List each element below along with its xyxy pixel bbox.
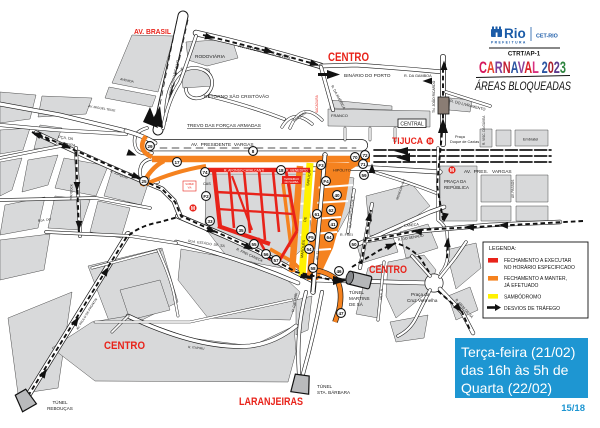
svg-text:Terça-feira (21/02): Terça-feira (21/02) bbox=[461, 344, 575, 360]
svg-text:Quarta (22/02): Quarta (22/02) bbox=[461, 380, 552, 396]
svg-text:M: M bbox=[428, 139, 432, 145]
svg-text:DO SAMBA: DO SAMBA bbox=[285, 180, 299, 184]
svg-text:18: 18 bbox=[278, 168, 284, 173]
svg-text:47: 47 bbox=[338, 311, 344, 316]
svg-text:AV. PASSOS: AV. PASSOS bbox=[511, 180, 515, 198]
svg-text:54: 54 bbox=[306, 247, 312, 252]
svg-text:Praça: Praça bbox=[455, 135, 466, 139]
svg-text:Praça da: Praça da bbox=[411, 292, 430, 297]
svg-text:R. VISC. DA GÁVEA: R. VISC. DA GÁVEA bbox=[482, 115, 486, 145]
svg-text:F5: F5 bbox=[308, 235, 314, 240]
svg-text:DESVIOS DE TRÁFEGO: DESVIOS DE TRÁFEGO bbox=[504, 305, 560, 312]
svg-text:HIPÓLITO: HIPÓLITO bbox=[333, 168, 351, 173]
svg-text:57: 57 bbox=[273, 258, 279, 263]
svg-text:29: 29 bbox=[147, 144, 153, 149]
svg-text:17: 17 bbox=[174, 160, 180, 165]
svg-text:25: 25 bbox=[141, 179, 147, 184]
svg-text:AV. BRASIL: AV. BRASIL bbox=[134, 27, 172, 36]
svg-text:REBOUÇAS: REBOUÇAS bbox=[47, 406, 73, 411]
svg-text:AV. 31: AV. 31 bbox=[315, 251, 320, 261]
svg-text:M: M bbox=[450, 168, 454, 174]
svg-text:56: 56 bbox=[263, 252, 269, 257]
svg-text:Cruz Vermelha: Cruz Vermelha bbox=[407, 298, 438, 303]
svg-text:TÚNEL: TÚNEL bbox=[317, 383, 333, 389]
svg-text:PRAÇA DA: PRAÇA DA bbox=[444, 179, 466, 184]
svg-text:ÁREAS BLOQUEADAS: ÁREAS BLOQUEADAS bbox=[474, 78, 571, 93]
svg-text:JÁ EFETUADO: JÁ EFETUADO bbox=[504, 282, 539, 289]
svg-text:R. BENEDITO: R. BENEDITO bbox=[286, 169, 308, 173]
svg-text:R. DA GAMBOA: R. DA GAMBOA bbox=[404, 74, 432, 78]
svg-text:SAMBÓDROMO: SAMBÓDROMO bbox=[504, 294, 541, 301]
svg-text:R. FREI: R. FREI bbox=[340, 233, 353, 237]
svg-text:TÚNEL: TÚNEL bbox=[52, 399, 68, 405]
svg-text:HADDOCK: HADDOCK bbox=[69, 183, 74, 200]
svg-text:46: 46 bbox=[336, 269, 342, 274]
svg-text:62: 62 bbox=[328, 208, 334, 213]
svg-text:59: 59 bbox=[361, 173, 367, 178]
svg-text:VIA: VIA bbox=[188, 187, 192, 190]
svg-text:RODOVIÁRIA: RODOVIÁRIA bbox=[195, 53, 226, 60]
svg-text:SACADURA: SACADURA bbox=[315, 94, 319, 113]
svg-text:50: 50 bbox=[351, 242, 357, 247]
svg-text:TREVO DAS FORÇAS ARMADAS: TREVO DAS FORÇAS ARMADAS bbox=[187, 123, 261, 129]
svg-text:70: 70 bbox=[352, 155, 358, 160]
svg-text:STA. BÁRBARA: STA. BÁRBARA bbox=[317, 389, 351, 395]
svg-text:FECHAMENTO A MANTER,: FECHAMENTO A MANTER, bbox=[504, 276, 567, 282]
svg-text:MARTINS: MARTINS bbox=[349, 296, 370, 301]
svg-text:Duque de Caxias: Duque de Caxias bbox=[450, 140, 479, 144]
svg-text:41: 41 bbox=[330, 222, 336, 227]
svg-text:71: 71 bbox=[360, 162, 366, 167]
svg-text:FECHAMENTO A EXECUTAR: FECHAMENTO A EXECUTAR bbox=[504, 258, 572, 264]
svg-text:TIJUCA: TIJUCA bbox=[392, 136, 423, 146]
svg-text:LEGENDA:: LEGENDA: bbox=[489, 246, 516, 252]
svg-text:F2: F2 bbox=[203, 194, 209, 199]
svg-text:BINÁRIO DO PORTO: BINÁRIO DO PORTO bbox=[344, 72, 391, 79]
svg-text:M: M bbox=[191, 206, 195, 212]
svg-text:AV. PRESIDENTE VARGAS: AV. PRESIDENTE VARGAS bbox=[191, 142, 254, 148]
svg-text:58: 58 bbox=[310, 266, 316, 271]
svg-text:AV. PRES. VARGAS: AV. PRES. VARGAS bbox=[464, 169, 512, 175]
svg-text:CAS: CAS bbox=[203, 182, 211, 186]
svg-text:LARANJEIRAS: LARANJEIRAS bbox=[239, 396, 303, 408]
svg-text:72: 72 bbox=[362, 153, 368, 158]
svg-text:CARNAVAL 2023: CARNAVAL 2023 bbox=[479, 58, 566, 77]
svg-text:61: 61 bbox=[314, 212, 320, 217]
svg-text:TN. JOÃO RICARDO: TN. JOÃO RICARDO bbox=[431, 80, 436, 113]
svg-text:FRANCO: FRANCO bbox=[331, 113, 348, 118]
svg-text:74: 74 bbox=[202, 170, 208, 175]
svg-text:CENTRO: CENTRO bbox=[104, 340, 145, 352]
svg-text:55: 55 bbox=[251, 242, 257, 247]
svg-text:35: 35 bbox=[238, 228, 244, 233]
svg-text:8: 8 bbox=[252, 149, 255, 154]
svg-text:15/18: 15/18 bbox=[561, 403, 585, 414]
svg-text:REPÚBLICA: REPÚBLICA bbox=[444, 185, 469, 190]
svg-text:CET-RIO: CET-RIO bbox=[536, 34, 558, 40]
svg-text:Embratel: Embratel bbox=[523, 138, 538, 142]
svg-text:CENTRO: CENTRO bbox=[328, 50, 369, 64]
svg-text:33: 33 bbox=[207, 219, 213, 224]
svg-text:RETORNO SÃO CRISTÓVÃO: RETORNO SÃO CRISTÓVÃO bbox=[204, 93, 269, 100]
svg-text:CENTRAL: CENTRAL bbox=[400, 122, 424, 128]
svg-text:F3: F3 bbox=[318, 163, 324, 168]
svg-text:40: 40 bbox=[334, 193, 340, 198]
svg-text:NO HORÁRIO ESPECIFICADO: NO HORÁRIO ESPECIFICADO bbox=[504, 264, 575, 271]
svg-text:TÚNEL: TÚNEL bbox=[349, 289, 365, 295]
svg-text:CTRT/AP-1: CTRT/AP-1 bbox=[508, 51, 541, 58]
svg-text:Rio: Rio bbox=[504, 26, 526, 41]
svg-text:F4: F4 bbox=[323, 179, 329, 184]
svg-text:R. AFONSO CAVALCANTI: R. AFONSO CAVALCANTI bbox=[224, 169, 264, 173]
svg-text:CENTRO: CENTRO bbox=[369, 264, 407, 276]
svg-text:DE SÁ: DE SÁ bbox=[349, 301, 364, 307]
svg-text:PREFEITURA: PREFEITURA bbox=[491, 41, 527, 45]
svg-text:das 16h às 5h de: das 16h às 5h de bbox=[461, 362, 569, 378]
svg-text:64: 64 bbox=[326, 235, 332, 240]
